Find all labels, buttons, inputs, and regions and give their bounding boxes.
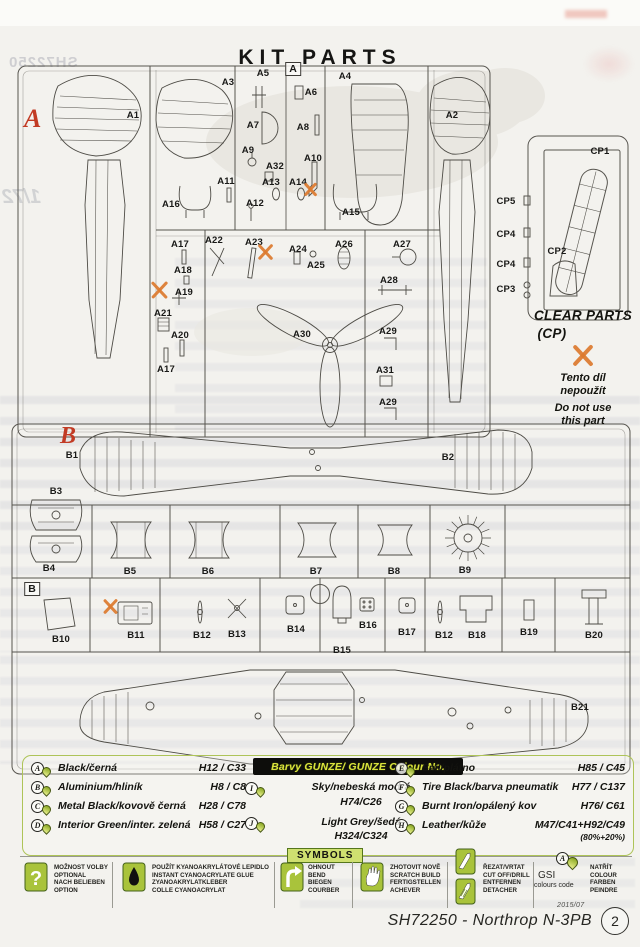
- part-label: B4: [43, 563, 56, 574]
- symbol-text: OHNOUT BEND BIEGEN COURBER: [308, 864, 339, 894]
- part-label: A9: [242, 145, 255, 156]
- part-label: A2: [446, 110, 459, 121]
- colour-name: Sail/plátno: [422, 762, 475, 774]
- symbol-line: FERTIGSTELLEN: [390, 879, 441, 887]
- part-label: A21: [154, 308, 172, 319]
- part-label: B10: [52, 634, 70, 645]
- part-label: B21: [571, 702, 589, 713]
- sprue-b-frame-letter: B: [24, 582, 40, 596]
- part-label: B5: [124, 566, 137, 577]
- colour-row: C Metal Black/kovově černá H28 / C78: [31, 800, 246, 814]
- symbol-line: NACH BELIEBEN: [54, 879, 108, 887]
- symbol-line: COLOUR: [590, 872, 618, 880]
- part-label: B11: [127, 630, 145, 641]
- paint-drop-icon: [256, 822, 265, 831]
- colour-row: E Sail/plátno H85 / C45: [395, 762, 625, 776]
- colour-row: D Interior Green/inter. zelená H58 / C27: [31, 819, 246, 833]
- part-label: B14: [287, 624, 305, 635]
- part-label: A29: [379, 397, 397, 408]
- footer-date: 2015/07: [557, 902, 584, 909]
- sprue-a-letter: A: [24, 104, 41, 134]
- symbol-text: ŘEZAT/VRTAT CUT OFF/DRILL ENTFERNEN DETA…: [483, 864, 530, 894]
- clear-parts-heading-cp: (CP): [538, 326, 567, 341]
- part-label: B12: [193, 630, 211, 641]
- clear-parts-frame: [524, 136, 628, 320]
- part-label: CP4: [496, 259, 515, 270]
- symbol-line: INSTANT CYANOACRYLATE GLUE: [152, 872, 269, 880]
- part-label: B20: [585, 630, 603, 641]
- part-label: B18: [468, 630, 486, 641]
- colour-code: H12 / C33: [199, 762, 246, 774]
- part-label: A16: [162, 199, 180, 210]
- symbol-line: PEINDRE: [590, 887, 618, 895]
- scratch-build-hand-icon: [360, 862, 384, 892]
- canopy-part: [553, 167, 610, 298]
- symbol-text: ZHOTOVIT NOVĚ SCRATCH BUILD FERTIGSTELLE…: [390, 864, 441, 894]
- part-label: B12: [435, 630, 453, 641]
- colour-code: H85 / C45: [578, 762, 625, 774]
- part-label: CP3: [496, 284, 515, 295]
- gsi-label: GSI: [538, 870, 555, 881]
- part-label: CP5: [496, 196, 515, 207]
- part-label: CP1: [590, 146, 609, 157]
- paint-drop-icon: [406, 767, 415, 776]
- colour-name: Leather/kůže: [422, 819, 486, 831]
- part-label: A23: [245, 237, 263, 248]
- part-label: A28: [380, 275, 398, 286]
- colour-code-ratio: (80%+20%): [580, 832, 625, 842]
- do-not-use-note-en: this part: [561, 415, 604, 427]
- sprue-b-parts: [30, 430, 606, 764]
- part-label: A30: [293, 329, 311, 340]
- symbol-line: ZYANOAKRYLATKLEBER: [152, 879, 269, 887]
- part-label: CP2: [547, 246, 566, 257]
- symbols-column-divider: [112, 862, 113, 908]
- sprue-b-frame: [12, 424, 630, 774]
- footer-product-title: SH72250 - Northrop N-3PB: [388, 912, 592, 930]
- gsi-colour-drop-icon: A: [556, 852, 578, 868]
- part-label: A19: [175, 287, 193, 298]
- part-label: A29: [379, 326, 397, 337]
- svg-text:?: ?: [30, 868, 42, 890]
- part-label: B15: [333, 645, 351, 656]
- part-label: A13: [262, 177, 280, 188]
- symbol-line: BEND: [308, 872, 339, 880]
- paint-drop-icon: [42, 824, 51, 833]
- symbol-line: ACHEVER: [390, 887, 441, 895]
- symbol-line: BIEGEN: [308, 879, 339, 887]
- colour-row: J: [245, 817, 273, 831]
- part-label: A5: [257, 68, 270, 79]
- colour-code: H77 / C137: [572, 781, 625, 793]
- paint-drop-icon: [567, 857, 578, 868]
- part-label: A4: [339, 71, 352, 82]
- part-label: A8: [297, 122, 310, 133]
- cut-drill-knife-icon: [455, 848, 476, 875]
- symbol-line: OHNOUT: [308, 864, 339, 872]
- part-label: B8: [388, 566, 401, 577]
- colour-row: H Leather/kůže M47/C41+H92/C49: [395, 819, 625, 833]
- symbol-line: ZHOTOVIT NOVĚ: [390, 864, 441, 872]
- paint-drop-icon: [42, 767, 51, 776]
- part-label: A6: [305, 87, 318, 98]
- part-label: A20: [171, 330, 189, 341]
- symbol-line: POUŽÍT KYANOAKRYLÁTOVÉ LEPIDLO: [152, 864, 269, 872]
- symbol-line: OPTIONAL: [54, 872, 108, 880]
- cut-drill-knife-icon: [455, 878, 476, 905]
- colour-code: H58 / C27: [199, 819, 246, 831]
- sprue-a-frame-letter: A: [285, 62, 301, 76]
- part-label: B1: [66, 450, 79, 461]
- part-label: A32: [266, 161, 284, 172]
- symbol-line: OPTION: [54, 887, 108, 895]
- symbols-column-divider: [352, 862, 353, 908]
- cyanoacrylate-glue-drop-icon: [122, 862, 146, 892]
- symbol-text: POUŽÍT KYANOAKRYLÁTOVÉ LEPIDLO INSTANT C…: [152, 864, 269, 894]
- colour-row: B Aluminium/hliník H8 / C8: [31, 781, 246, 795]
- colour-name: Metal Black/kovově černá: [58, 800, 186, 812]
- part-label: B13: [228, 629, 246, 640]
- colour-code: H76/ C61: [581, 800, 625, 812]
- paint-drop-icon: [256, 787, 265, 796]
- paint-drop-icon: [406, 786, 415, 795]
- sprue-b-letter: B: [60, 423, 76, 450]
- colour-name: Burnt Iron/opálený kov: [422, 800, 536, 812]
- part-label: A26: [335, 239, 353, 250]
- part-label: B9: [459, 565, 472, 576]
- part-label: A7: [247, 120, 260, 131]
- part-label: A25: [307, 260, 325, 271]
- symbol-line: SCRATCH BUILD: [390, 872, 441, 880]
- symbol-line: NATŘÍT: [590, 864, 618, 872]
- paint-drop-icon: [406, 824, 415, 833]
- symbol-line: DETACHER: [483, 887, 530, 895]
- colour-code: H28 / C78: [199, 800, 246, 812]
- symbol-line: COURBER: [308, 887, 339, 895]
- part-label: A11: [217, 176, 235, 187]
- symbol-line: ŘEZAT/VRTAT: [483, 864, 530, 872]
- do-not-use-note-en: Do not use: [555, 402, 612, 414]
- symbols-column-divider: [274, 862, 275, 908]
- part-label: B2: [442, 452, 455, 463]
- page-number-badge: 2: [601, 907, 629, 935]
- colour-row: A Black/černá H12 / C33: [31, 762, 246, 776]
- symbol-line: FARBEN: [590, 879, 618, 887]
- paint-drop-icon: [42, 805, 51, 814]
- symbol-line: CUT OFF/DRILL: [483, 872, 530, 880]
- part-label: A12: [246, 198, 264, 209]
- part-label: B6: [202, 566, 215, 577]
- colour-row: F Tire Black/barva pneumatik H77 / C137: [395, 781, 625, 795]
- part-label: B19: [520, 627, 538, 638]
- part-label: B16: [359, 620, 377, 631]
- colour-row: I: [245, 782, 273, 796]
- symbols-column-divider: [447, 862, 448, 908]
- gsi-sublabel: colours code: [534, 882, 574, 889]
- colour-name: Black/černá: [58, 762, 117, 774]
- symbol-line: COLLE CYANOACRYLAT: [152, 887, 269, 895]
- symbol-text: NATŘÍT COLOUR FARBEN PEINDRE: [590, 864, 618, 894]
- part-label: A27: [393, 239, 411, 250]
- symbols-heading: SYMBOLS: [287, 848, 363, 863]
- part-label: A10: [304, 153, 322, 164]
- paint-drop-icon: [42, 786, 51, 795]
- windscreen-part: [550, 261, 577, 296]
- part-label: A31: [376, 365, 394, 376]
- colour-name: Tire Black/barva pneumatik: [422, 781, 558, 793]
- colour-name: Aluminium/hliník: [58, 781, 143, 793]
- do-not-use-note-cz: Tento díl: [560, 372, 605, 384]
- part-label: A24: [289, 244, 307, 255]
- colour-code: H8 / C8: [210, 781, 246, 793]
- bend-arrow-icon: [280, 862, 304, 892]
- clear-parts-heading: CLEAR PARTS: [534, 308, 632, 323]
- colour-row: G Burnt Iron/opálený kov H76/ C61: [395, 800, 625, 814]
- part-label: CP4: [496, 229, 515, 240]
- part-label: A15: [342, 207, 360, 218]
- part-label: B3: [50, 486, 63, 497]
- part-label: A14: [289, 177, 307, 188]
- symbol-line: ENTFERNEN: [483, 879, 530, 887]
- colour-table: Barvy GUNZE/ GUNZE Colour No. A Black/če…: [22, 755, 634, 856]
- part-label: A3: [222, 77, 235, 88]
- part-label: B17: [398, 627, 416, 638]
- paint-drop-icon: [406, 805, 415, 814]
- part-label: A17: [157, 364, 175, 375]
- colour-code: M47/C41+H92/C49: [535, 819, 625, 831]
- part-label: B7: [310, 566, 323, 577]
- symbol-line: MOŽNOST VOLBY: [54, 864, 108, 872]
- colour-name: Interior Green/inter. zelená: [58, 819, 190, 831]
- part-label: A18: [174, 265, 192, 276]
- part-label: A1: [127, 110, 140, 121]
- part-label: A22: [205, 235, 223, 246]
- optional-question-icon: ?: [24, 862, 48, 892]
- do-not-use-note-cz: nepoužít: [560, 385, 605, 397]
- part-label: A17: [171, 239, 189, 250]
- page-number: 2: [611, 913, 619, 929]
- symbol-text: MOŽNOST VOLBY OPTIONAL NACH BELIEBEN OPT…: [54, 864, 108, 894]
